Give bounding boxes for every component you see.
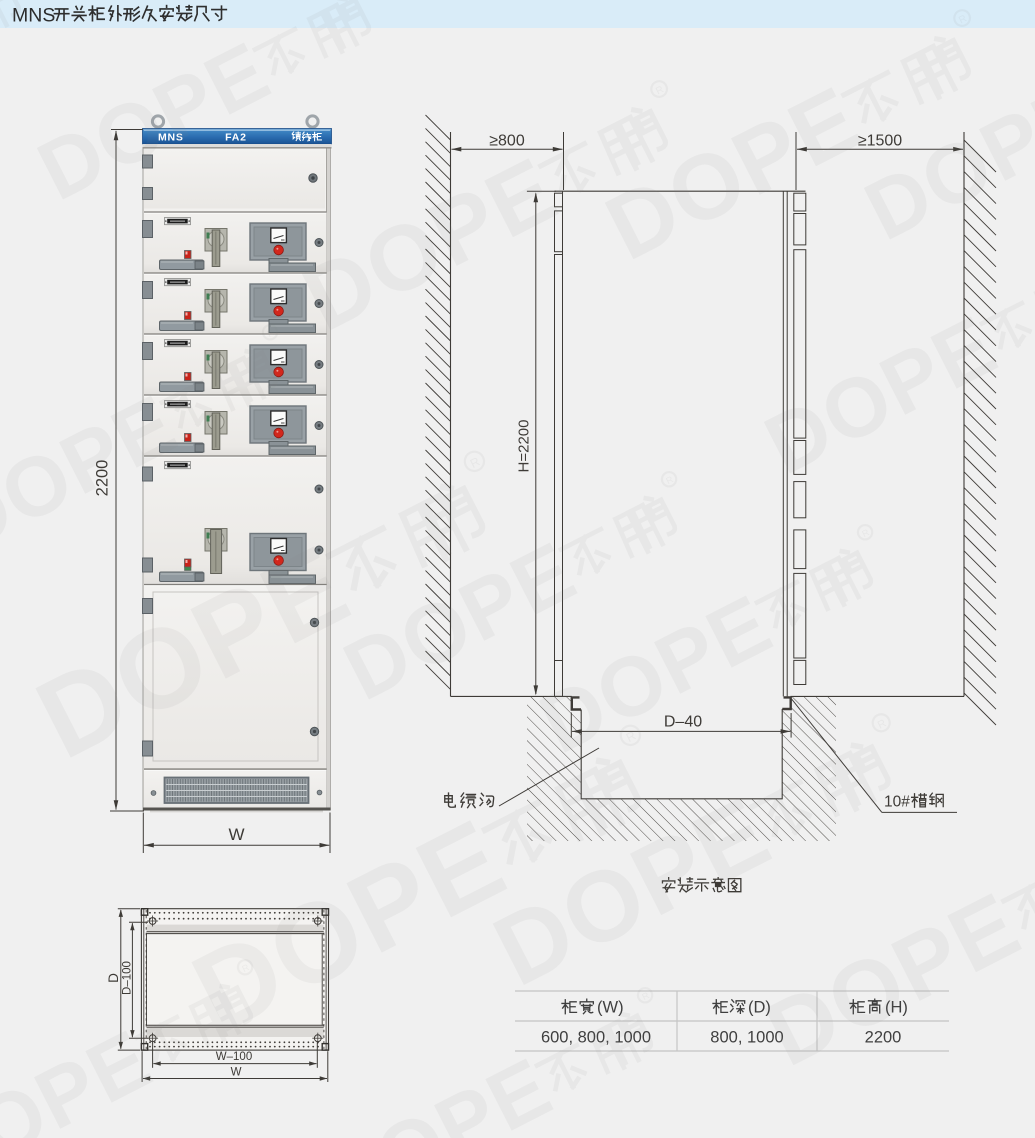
svg-text:MNS: MNS — [12, 5, 55, 27]
svg-text:(H): (H) — [885, 999, 908, 1017]
svg-text:2200: 2200 — [94, 460, 112, 497]
svg-text:(D): (D) — [748, 999, 771, 1017]
svg-text:R: R — [654, 84, 666, 97]
svg-text:2200: 2200 — [865, 1029, 902, 1047]
svg-text:D–40: D–40 — [664, 714, 702, 731]
svg-text:≥800: ≥800 — [489, 133, 525, 150]
svg-text:(W): (W) — [597, 999, 624, 1017]
svg-text:≥1500: ≥1500 — [858, 133, 902, 150]
svg-text:W: W — [228, 825, 244, 844]
svg-text:800, 1000: 800, 1000 — [710, 1029, 783, 1047]
svg-text:H=2200: H=2200 — [516, 420, 533, 473]
svg-text:W–100: W–100 — [216, 1051, 252, 1063]
svg-text:D–100: D–100 — [122, 961, 134, 995]
svg-text:D: D — [106, 973, 121, 983]
svg-text:600, 800, 1000: 600, 800, 1000 — [541, 1029, 651, 1047]
svg-text:W: W — [231, 1067, 242, 1079]
svg-text:10#: 10# — [884, 794, 910, 811]
